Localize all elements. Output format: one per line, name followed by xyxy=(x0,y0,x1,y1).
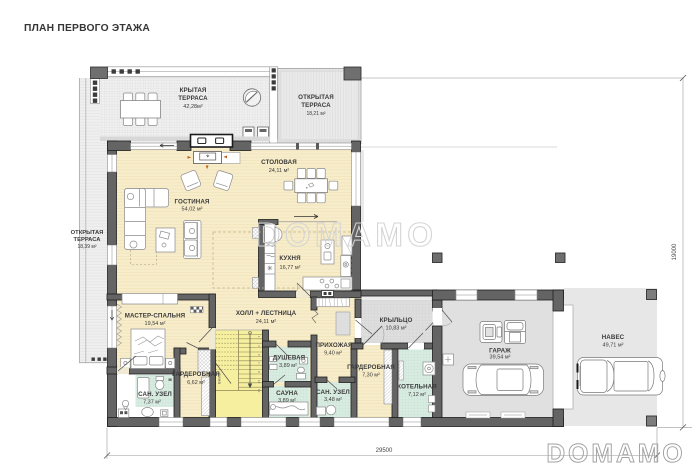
svg-text:ПЛАН ПЕРВОГО ЭТАЖА: ПЛАН ПЕРВОГО ЭТАЖА xyxy=(24,23,150,34)
svg-text:ОТКРЫТАЯ: ОТКРЫТАЯ xyxy=(298,94,334,101)
svg-text:18,21 м²: 18,21 м² xyxy=(306,111,325,117)
svg-text:16,77 м²: 16,77 м² xyxy=(280,265,301,271)
svg-text:24,11 м²: 24,11 м² xyxy=(256,319,277,325)
svg-text:САН. УЗЕЛ: САН. УЗЕЛ xyxy=(138,391,172,398)
svg-text:54,02 м²: 54,02 м² xyxy=(182,207,203,213)
svg-text:3,89 м²: 3,89 м² xyxy=(279,363,297,369)
svg-text:КРЫЛЬЦО: КРЫЛЬЦО xyxy=(380,317,413,324)
svg-text:11: 11 xyxy=(257,380,261,383)
svg-text:НАВЕС: НАВЕС xyxy=(602,334,625,341)
svg-text:DOMAMO: DOMAMO xyxy=(257,216,438,253)
svg-text:10,83 м²: 10,83 м² xyxy=(386,326,407,332)
svg-text:КУХНЯ: КУХНЯ xyxy=(279,255,301,262)
svg-text:ТЕРРАСА: ТЕРРАСА xyxy=(301,102,331,109)
svg-text:49,71 м²: 49,71 м² xyxy=(603,343,624,349)
svg-text:18,39 м²: 18,39 м² xyxy=(77,244,96,250)
svg-text:19,54 м²: 19,54 м² xyxy=(145,321,166,327)
svg-text:ПРИХОЖАЯ: ПРИХОЖАЯ xyxy=(315,342,352,349)
svg-text:29500: 29500 xyxy=(376,448,393,454)
svg-text:6,62 м²: 6,62 м² xyxy=(187,380,205,386)
svg-text:3,89 м²: 3,89 м² xyxy=(278,398,296,404)
svg-text:7,37 м²: 7,37 м² xyxy=(143,400,161,406)
svg-text:9,40 м²: 9,40 м² xyxy=(324,351,342,357)
svg-text:24,11 м²: 24,11 м² xyxy=(269,168,290,174)
svg-text:ТЕРРАСА: ТЕРРАСА xyxy=(178,95,208,102)
svg-text:ТЕРРАСА: ТЕРРАСА xyxy=(74,237,102,243)
svg-text:13: 13 xyxy=(257,389,261,393)
svg-text:САН. УЗЕЛ: САН. УЗЕЛ xyxy=(316,389,350,396)
svg-text:ХОЛЛ + ЛЕСТНИЦА: ХОЛЛ + ЛЕСТНИЦА xyxy=(236,310,297,317)
svg-text:19000: 19000 xyxy=(672,243,678,260)
svg-text:ГАРДЕРОБНАЯ: ГАРДЕРОБНАЯ xyxy=(172,371,220,378)
svg-text:МАСТЕР-СПАЛЬНЯ: МАСТЕР-СПАЛЬНЯ xyxy=(125,313,186,320)
svg-text:DOMAMO: DOMAMO xyxy=(546,438,685,467)
svg-text:39,54 м²: 39,54 м² xyxy=(490,355,511,361)
svg-text:42,28м²: 42,28м² xyxy=(183,104,203,110)
svg-text:ГОСТИНАЯ: ГОСТИНАЯ xyxy=(175,199,210,206)
svg-text:ГАРАЖ: ГАРАЖ xyxy=(489,348,511,355)
svg-text:САУНА: САУНА xyxy=(276,390,298,397)
svg-text:ОТКРЫТАЯ: ОТКРЫТАЯ xyxy=(71,230,104,236)
svg-text:КРЫТАЯ: КРЫТАЯ xyxy=(180,87,207,94)
svg-text:КОТЕЛЬНАЯ: КОТЕЛЬНАЯ xyxy=(397,384,437,391)
svg-text:7,30 м²: 7,30 м² xyxy=(362,373,380,379)
svg-text:СТОЛОВАЯ: СТОЛОВАЯ xyxy=(261,159,297,166)
svg-text:ДУШЕВАЯ: ДУШЕВАЯ xyxy=(273,355,306,362)
svg-text:7,12 м²: 7,12 м² xyxy=(408,392,426,398)
svg-text:3,48 м²: 3,48 м² xyxy=(324,397,342,403)
svg-text:ГАРДЕРОБНАЯ: ГАРДЕРОБНАЯ xyxy=(347,364,395,371)
